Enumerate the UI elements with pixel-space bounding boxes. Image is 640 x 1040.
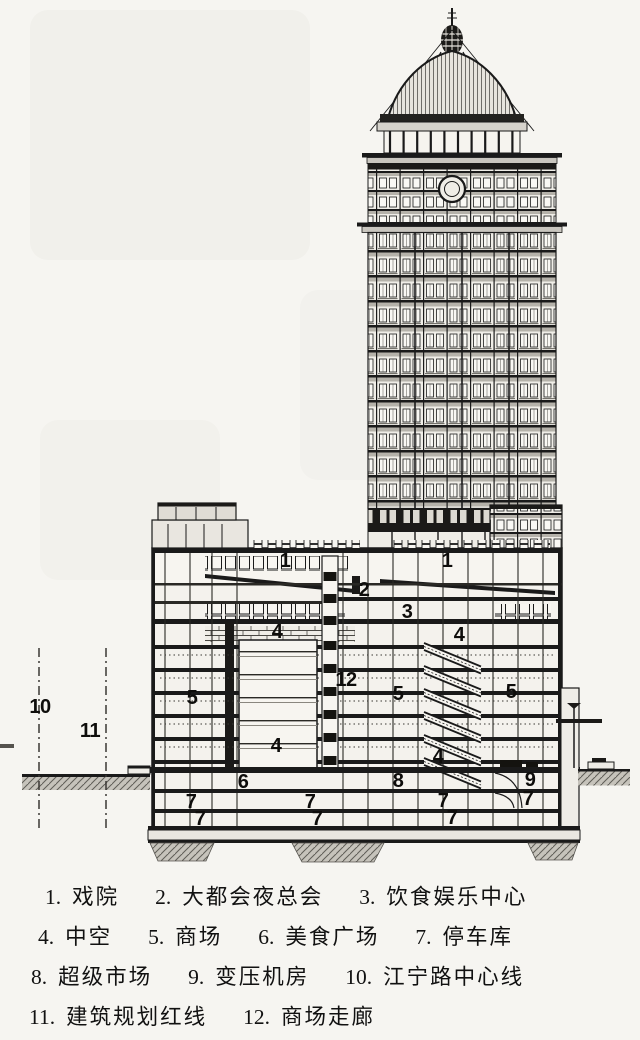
dome-entablature (377, 122, 527, 131)
callout-parking: 7 (447, 808, 458, 828)
legend-item: 6.美食广场 (258, 920, 379, 951)
legend-item-number: 10. (345, 965, 372, 990)
slab-level3 (152, 619, 562, 624)
legend-item: 2.大都会夜总会 (155, 880, 323, 911)
callout-road-centerline: 10 (29, 697, 50, 717)
callout-mall-mid: 5 (393, 684, 404, 704)
legend-item: 9.变压机房 (188, 960, 309, 991)
legend-item-label: 饮食娱乐中心 (386, 880, 527, 911)
dome-base-band (380, 114, 524, 122)
callout-theater-right: 1 (442, 551, 453, 571)
legend-item-number: 8. (31, 965, 47, 990)
legend-item-label: 戏院 (72, 880, 119, 911)
ground-slab (150, 767, 580, 773)
legend-item: 3.饮食娱乐中心 (359, 880, 527, 911)
roof-parapet (252, 540, 360, 548)
tower-cornice-mid-band (362, 227, 562, 233)
legend-item: 11.建筑规划红线 (29, 1000, 207, 1031)
callout-food-entertainment: 3 (402, 602, 413, 622)
tower-clock-ornament (439, 176, 465, 202)
building-section-drawing: 1 1 2 3 4 4 5 12 5 5 4 4 6 8 9 7 7 7 7 7… (0, 0, 640, 872)
tower-upper-spandrel (368, 164, 556, 170)
legend-item-number: 1. (45, 885, 61, 910)
tower-colonnade (384, 131, 520, 153)
podium-roof-slab (152, 548, 562, 553)
legend-row-1: 1.戏院 2.大都会夜总会 3.饮食娱乐中心 (0, 880, 640, 920)
legend-item-label: 中空 (65, 920, 112, 951)
callout-void-top-left: 4 (272, 622, 283, 642)
legend-item-label: 商场 (175, 920, 222, 951)
tower (357, 8, 567, 548)
callout-supermarket: 8 (393, 771, 404, 791)
legend-item-number: 3. (359, 885, 375, 910)
podium-right-wall (558, 548, 562, 828)
callout-nightclub: 2 (359, 580, 370, 600)
tower-cornice-top-band (367, 158, 557, 164)
legend-item-number: 9. (188, 965, 204, 990)
callout-red-line: 11 (80, 721, 100, 741)
legend-item-label: 超级市场 (58, 960, 152, 991)
legend-item-label: 建筑规划红线 (66, 1000, 207, 1031)
legend-item-number: 4. (38, 925, 54, 950)
legend-row-3: 8.超级市场 9.变压机房 10.江宁路中心线 (0, 960, 640, 1000)
basement-slab-1 (152, 789, 578, 793)
legend-row-2: 4.中空 5.商场 6.美食广场 7.停车库 (0, 920, 640, 960)
legend-item: 4.中空 (38, 920, 112, 951)
callout-parking: 7 (312, 809, 323, 829)
legend-item-label: 商场走廊 (281, 1000, 375, 1031)
legend-item: 12.商场走廊 (243, 1000, 375, 1031)
callout-transformer: 9 (525, 770, 536, 790)
tower-cornice-mid (357, 223, 567, 227)
callout-food-court: 6 (238, 772, 249, 792)
podium-rooftop-left (152, 503, 248, 548)
elevator-shaft (322, 556, 338, 768)
legend-item: 7.停车库 (415, 920, 513, 951)
legend-item-label: 美食广场 (285, 920, 379, 951)
legend: 1.戏院 2.大都会夜总会 3.饮食娱乐中心 4.中空 5.商场 6.美食广场 … (0, 880, 640, 1040)
callout-parking: 7 (195, 809, 206, 829)
legend-item-label: 江宁路中心线 (383, 960, 524, 991)
callout-mall-corridor: 12 (335, 670, 356, 690)
basement-slab-2 (152, 809, 578, 813)
foundation (148, 826, 580, 843)
legend-item-number: 6. (258, 925, 274, 950)
callout-mall-right: 5 (506, 682, 517, 702)
callout-theater-left: 1 (280, 551, 291, 571)
legend-item-number: 5. (148, 925, 164, 950)
legend-item-number: 7. (415, 925, 431, 950)
tower-dome (388, 51, 516, 118)
callout-void-top-right: 4 (454, 625, 465, 645)
legend-item: 1.戏院 (45, 880, 119, 911)
legend-item-number: 11. (29, 1005, 55, 1030)
callout-void-bottom-right: 4 (433, 747, 444, 767)
tower-cornice-top (362, 153, 562, 158)
roof-parapet (390, 540, 550, 548)
podium-left-wall (152, 548, 155, 828)
legend-item-label: 大都会夜总会 (182, 880, 323, 911)
page: 1 1 2 3 4 4 5 12 5 5 4 4 6 8 9 7 7 7 7 7… (0, 0, 640, 1035)
legend-item-label: 停车库 (443, 920, 514, 951)
slab-level2-left (152, 601, 332, 604)
legend-item: 10.江宁路中心线 (345, 960, 524, 991)
callout-void-bottom-left: 4 (271, 736, 282, 756)
soil-patches (150, 843, 578, 862)
podium (148, 503, 602, 843)
legend-item-label: 变压机房 (215, 960, 309, 991)
callout-mall-left: 5 (187, 688, 198, 708)
callout-parking: 7 (523, 789, 534, 809)
legend-item-number: 2. (155, 885, 171, 910)
legend-item-number: 12. (243, 1005, 270, 1030)
legend-row-4: 11.建筑规划红线 12.商场走廊 (0, 1000, 640, 1040)
legend-item: 5.商场 (148, 920, 222, 951)
legend-item: 8.超级市场 (31, 960, 152, 991)
